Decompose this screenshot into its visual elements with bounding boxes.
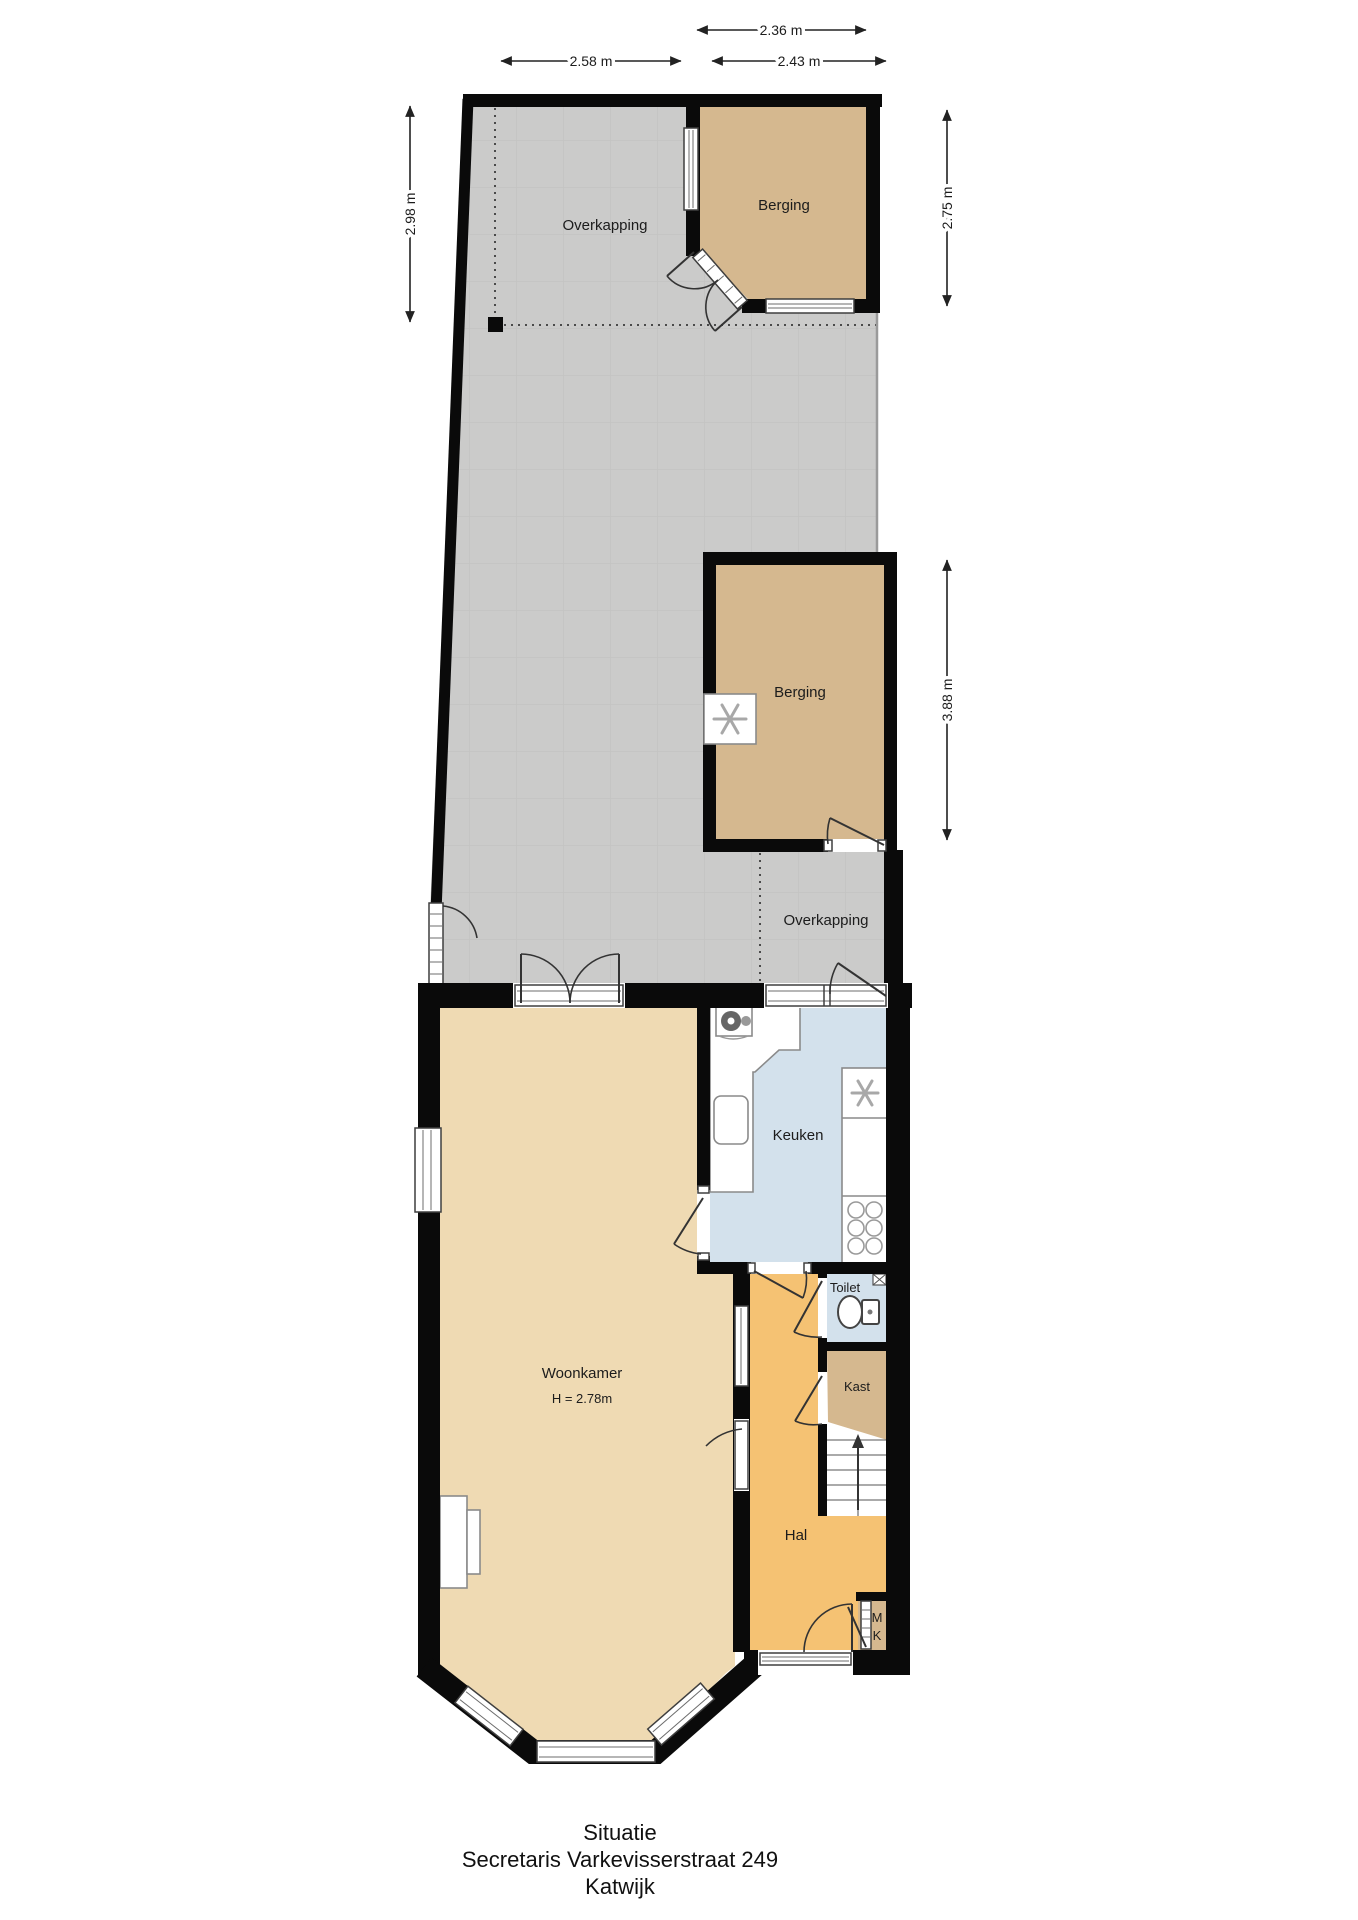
garden-fence-top (463, 94, 882, 107)
shed-top-window-bottom (766, 299, 854, 313)
shed-middle (703, 552, 897, 852)
label-meterkast-k: K (873, 1628, 882, 1643)
label-keuken: Keuken (773, 1127, 824, 1144)
bay-window-center (537, 1741, 655, 1762)
radiator-block (440, 1496, 480, 1588)
kitchen-counter-right (842, 1068, 888, 1264)
dim-label-2-58: 2.58 m (570, 53, 613, 69)
dim-label-2-43: 2.43 m (778, 53, 821, 69)
dim-label-2-36: 2.36 m (760, 22, 803, 38)
floorplan-page: 2.36 m 2.58 m 2.43 m 2.98 m 2.75 m 3.88 … (0, 0, 1358, 1920)
title-caption: Situatie (583, 1820, 656, 1845)
label-meterkast-m: M (872, 1610, 883, 1625)
toilet-icon (838, 1296, 879, 1328)
dim-label-2-75: 2.75 m (939, 187, 955, 230)
wall-toilet-closet (818, 1342, 890, 1351)
wall-meter-closet-top (856, 1592, 890, 1601)
label-hal: Hal (785, 1527, 808, 1544)
sink-icon (714, 1096, 748, 1144)
garden-wall-right-lower (884, 850, 903, 987)
label-woonkamer: Woonkamer (542, 1365, 623, 1382)
living-hall-glass-panel (735, 1306, 748, 1386)
house-wall-right (886, 983, 910, 1675)
dim-label-3-88: 3.88 m (939, 679, 955, 722)
label-toilet: Toilet (830, 1280, 861, 1295)
overkapping-roof-post (488, 317, 503, 332)
title-city: Katwijk (585, 1874, 656, 1899)
label-berging-middle: Berging (774, 684, 826, 701)
title-address: Secretaris Varkevisserstraat 249 (462, 1847, 778, 1872)
house (415, 954, 912, 1762)
house-wall-left (418, 983, 440, 1675)
floor-plan: 2.36 m 2.58 m 2.43 m 2.98 m 2.75 m 3.88 … (0, 0, 1358, 1920)
shed-top-window-left (684, 128, 698, 210)
label-berging-top: Berging (758, 197, 810, 214)
label-overkapping-lower: Overkapping (783, 912, 868, 929)
label-kast: Kast (844, 1379, 870, 1394)
boiler-icon (704, 694, 756, 744)
faucet-icon (716, 1006, 752, 1039)
shed-middle-wall-right (884, 552, 897, 852)
dim-label-2-98: 2.98 m (402, 193, 418, 236)
label-overkapping-top: Overkapping (562, 217, 647, 234)
shed-top-wall-right (866, 94, 880, 312)
shed-middle-wall-top (703, 552, 897, 565)
living-left-window (415, 1128, 441, 1212)
label-woonkamer-height: H = 2.78m (552, 1391, 612, 1406)
vent-icon (873, 1274, 886, 1285)
garden-area (429, 94, 903, 988)
plan-title: Situatie Secretaris Varkevisserstraat 24… (462, 1820, 778, 1899)
